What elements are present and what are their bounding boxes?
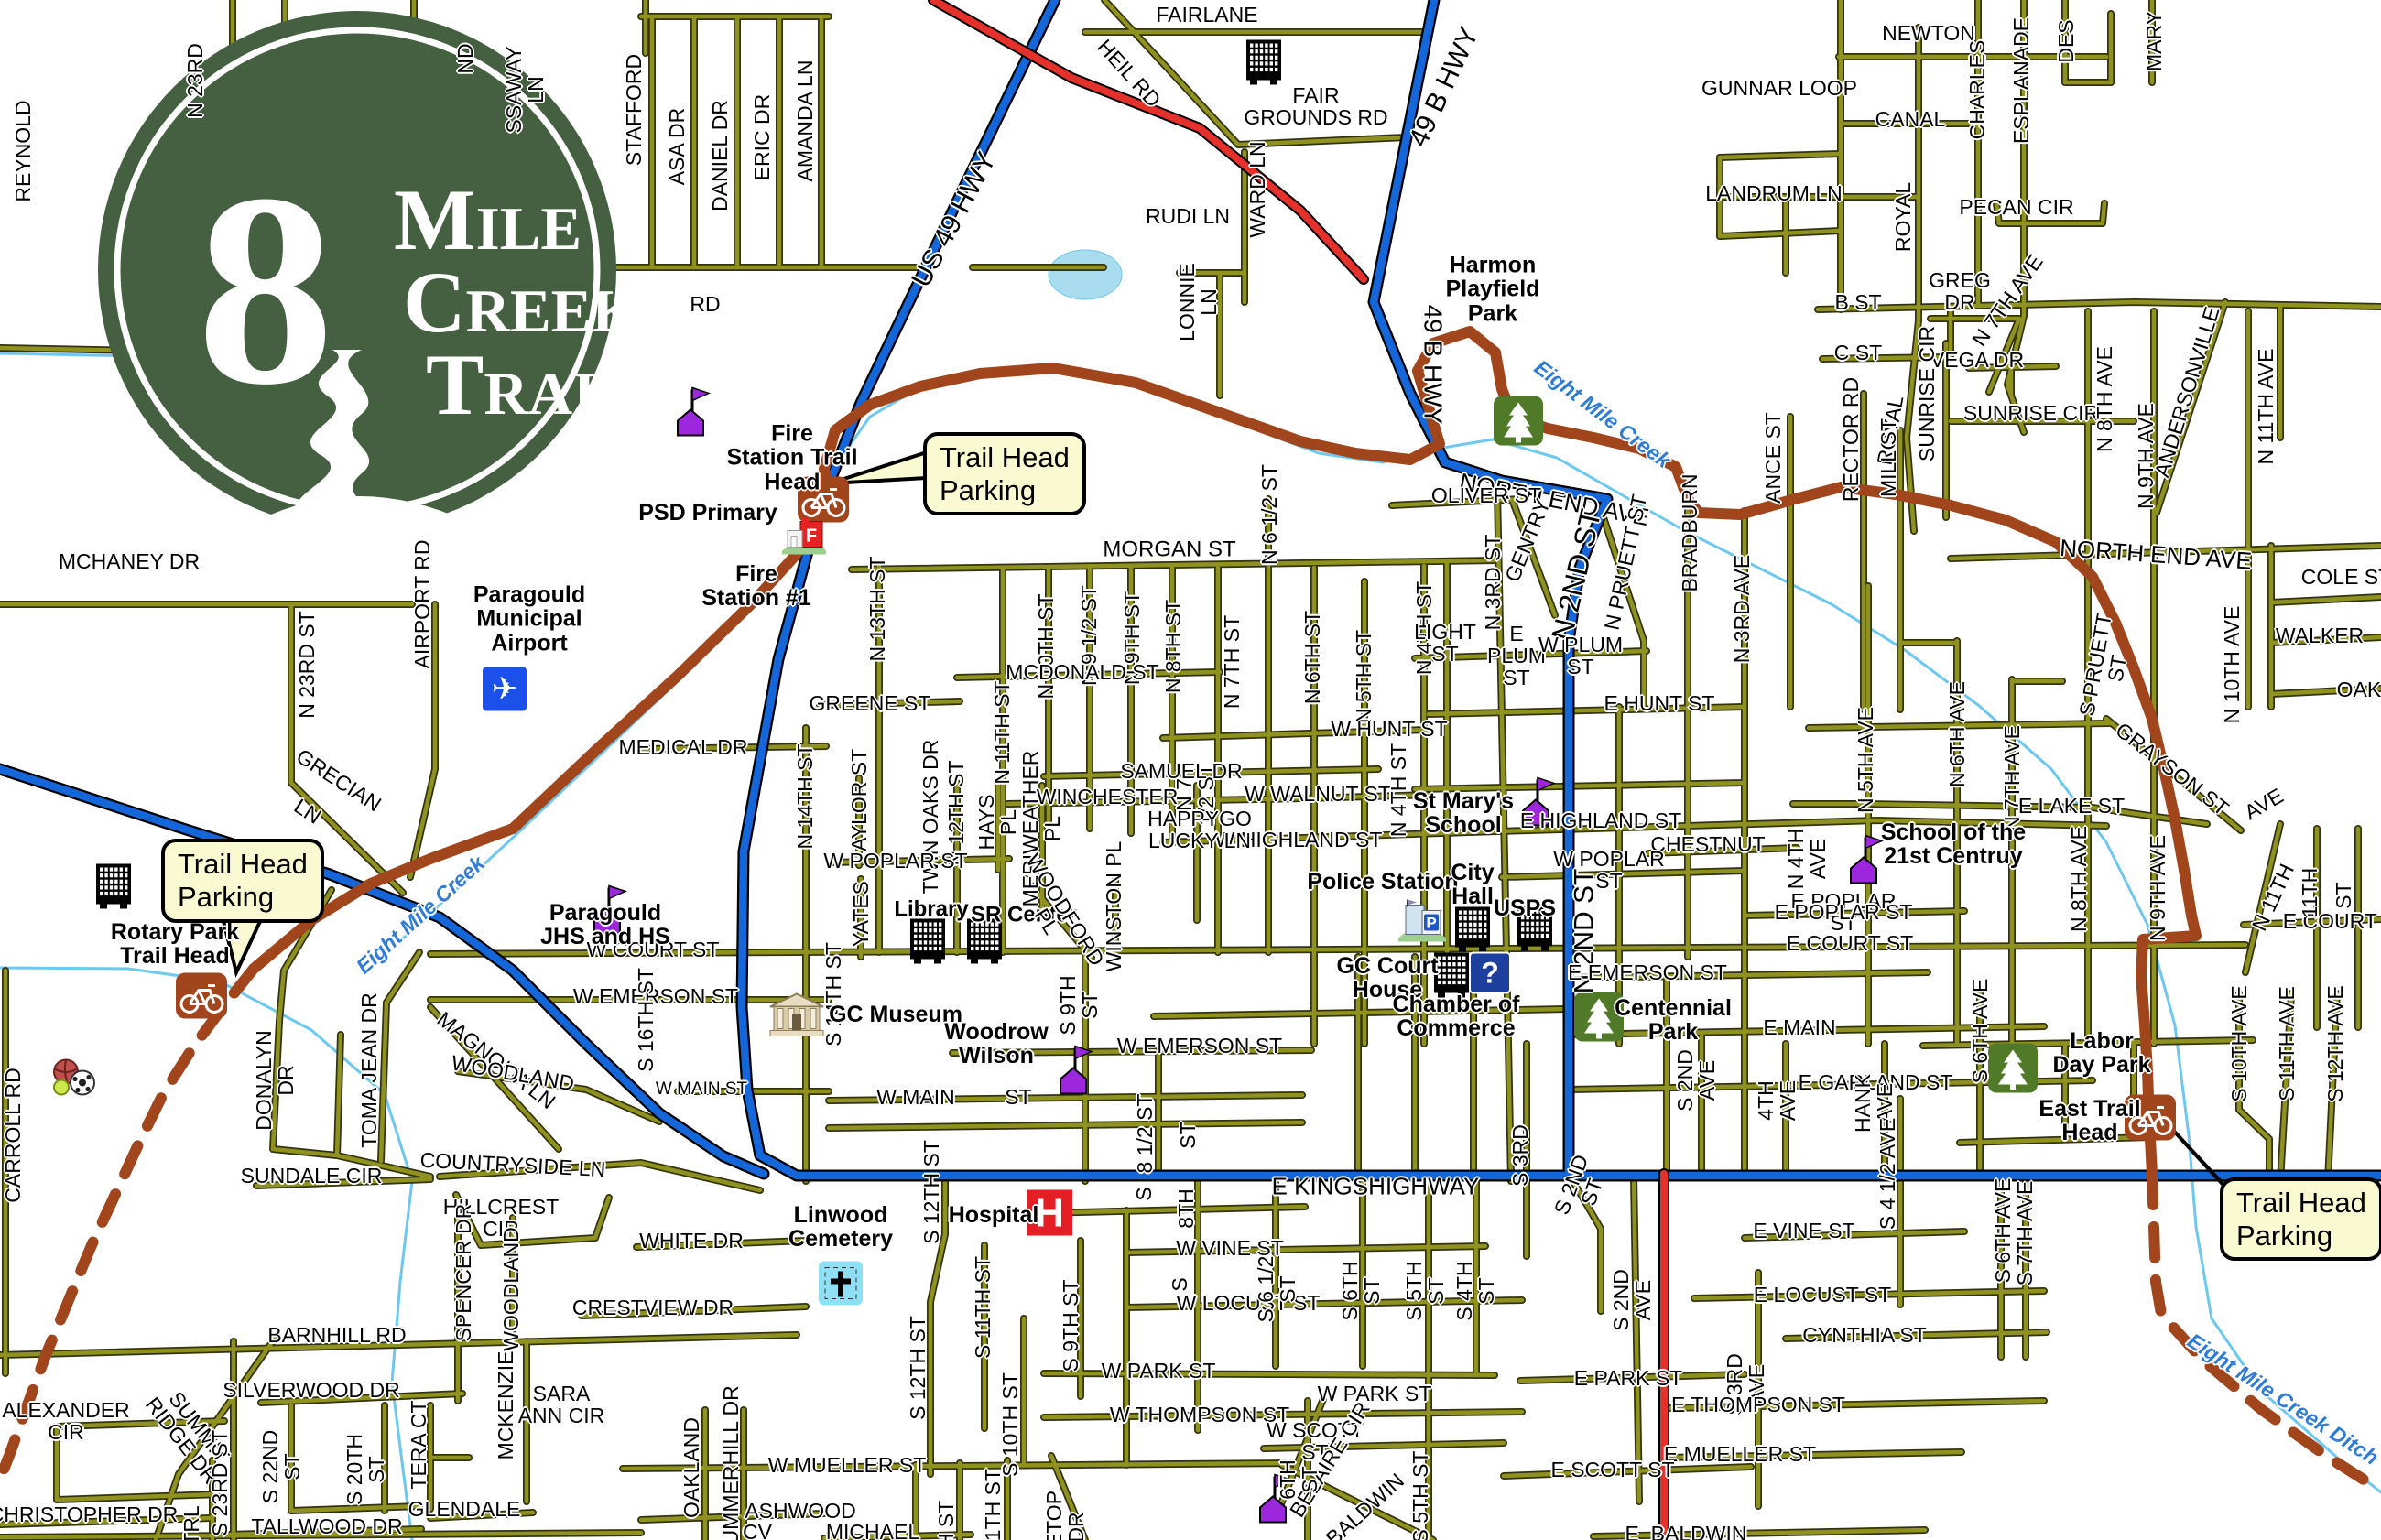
street (1923, 1040, 2253, 1046)
street (1634, 1177, 1639, 1502)
street (2239, 993, 2269, 1177)
street (2271, 689, 2381, 694)
street (386, 952, 419, 1003)
street-casing (291, 604, 403, 893)
street-casing (930, 1177, 945, 1474)
street (2157, 302, 2225, 513)
street-casing (1104, 0, 1406, 145)
street (2271, 597, 2381, 602)
street (430, 1513, 533, 1518)
street (273, 1021, 341, 1155)
street-casing (1601, 509, 1644, 707)
street (1951, 546, 2381, 559)
trail-route-dashed (2152, 1174, 2381, 1491)
street (381, 1003, 386, 1161)
street (456, 1195, 609, 1245)
street (1720, 231, 1841, 236)
creek-line (0, 968, 412, 1540)
street (1264, 1443, 1504, 1448)
street (2245, 824, 2280, 972)
callout-pointer (2169, 1126, 2248, 1212)
street (1960, 1137, 2150, 1143)
street (2271, 637, 2381, 643)
street (641, 746, 826, 749)
street-casing (1569, 1174, 1601, 1311)
street (1648, 848, 1797, 853)
street (2280, 993, 2291, 1181)
street (1104, 0, 1406, 145)
logo-number: 8 (197, 137, 334, 441)
street (0, 1335, 797, 1355)
street (1044, 1412, 1522, 1417)
pond (1049, 250, 1122, 299)
street (1513, 502, 1555, 615)
street (430, 1007, 559, 1149)
trail-logo: 8 Mile Creek Trail (87, 2, 627, 542)
street (952, 1050, 1311, 1053)
street-casing (410, 604, 435, 877)
logo-word-trail: Trail (426, 336, 627, 433)
highway (742, 0, 2381, 1176)
street (57, 1421, 224, 1426)
trail-map: 8 Mile Creek Trail FP?H✈ REYNOLDN 23RDND… (0, 0, 2381, 1540)
street (1026, 879, 1092, 958)
street (291, 604, 403, 893)
street (57, 1494, 220, 1500)
street-casing (1996, 203, 2104, 223)
street-casing (2239, 993, 2269, 1177)
street (829, 1122, 1302, 1128)
street (1664, 1452, 1962, 1458)
street (829, 1095, 1302, 1101)
highway-casing (742, 0, 2381, 1176)
street-casing (273, 1021, 341, 1155)
street (1822, 357, 1951, 359)
trail-route-dashed (0, 969, 254, 1479)
street (1907, 27, 1919, 531)
street (1497, 490, 1511, 1181)
